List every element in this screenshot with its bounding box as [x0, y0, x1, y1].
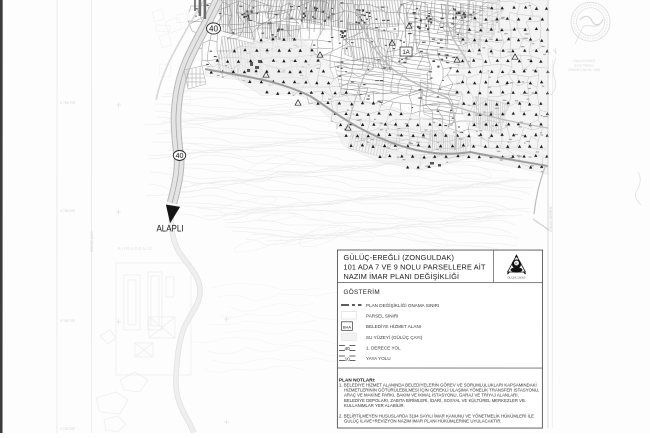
svg-text:40: 40: [344, 346, 350, 352]
svg-text:Şehir Plancısı: Şehir Plancısı: [574, 64, 594, 68]
svg-text:10: 10: [345, 356, 350, 361]
svg-text:YAYA YOLU: YAYA YOLU: [366, 356, 391, 361]
svg-text:GÜLÜÇ-EREĞLİ (ZONGULDAK): GÜLÜÇ-EREĞLİ (ZONGULDAK): [343, 253, 454, 262]
svg-text:NAZIM İMAR PLANI DEĞİŞİKLİĞİ: NAZIM İMAR PLANI DEĞİŞİKLİĞİ: [343, 272, 459, 281]
svg-text:PLAN NOTLARI:: PLAN NOTLARI:: [339, 377, 376, 382]
svg-text:KARADENİZ: KARADENİZ: [118, 245, 153, 251]
svg-text:ALAPLI: ALAPLI: [156, 223, 183, 234]
svg-text:101 ADA 7 VE 9 NOLU PARSELLERE: 101 ADA 7 VE 9 NOLU PARSELLERE AİT: [343, 263, 485, 272]
svg-text:4 763 700: 4 763 700: [60, 319, 75, 323]
svg-text:1. DERECE YOL: 1. DERECE YOL: [366, 346, 401, 351]
svg-text:SU YÜZEYİ (GÜLÜÇ ÇAYI): SU YÜZEYİ (GÜLÜÇ ÇAYI): [366, 334, 423, 340]
svg-text:BHA: BHA: [343, 324, 352, 329]
svg-text:ZMMOB Oda No: 1865: ZMMOB Oda No: 1865: [568, 68, 601, 72]
svg-text:GÖSTERİM: GÖSTERİM: [343, 287, 379, 296]
svg-text:Hülya AYDINER: Hülya AYDINER: [573, 59, 596, 63]
svg-text:BELEDİYE HİZMET ALANI: BELEDİYE HİZMET ALANI: [366, 323, 421, 329]
svg-text:GÜLÜÇ İLAVE+REVİZYON NAZIM İMA: GÜLÜÇ İLAVE+REVİZYON NAZIM İMAR PLANI HÜ…: [344, 419, 502, 424]
svg-text:40: 40: [209, 24, 218, 33]
svg-text:4 764 200: 4 764 200: [60, 209, 75, 213]
svg-text:4 763 200: 4 763 200: [60, 427, 75, 431]
svg-text:40: 40: [176, 151, 184, 160]
svg-text:GÜLÜÇ ÇAYI: GÜLÜÇ ÇAYI: [90, 231, 94, 252]
svg-text:PLAN DEĞİŞİKLİĞİ ONAMA SINIRI: PLAN DEĞİŞİKLİĞİ ONAMA SINIRI: [366, 302, 439, 308]
svg-text:1A: 1A: [402, 50, 409, 56]
svg-text:4 764 700: 4 764 700: [60, 101, 75, 105]
svg-text:KULLANIMLAR YER ALABİLİR.: KULLANIMLAR YER ALABİLİR.: [344, 403, 405, 408]
svg-text:PARSEL SINIRI: PARSEL SINIRI: [366, 314, 398, 319]
svg-text:ÖLÇEK:1/5000: ÖLÇEK:1/5000: [507, 276, 526, 280]
